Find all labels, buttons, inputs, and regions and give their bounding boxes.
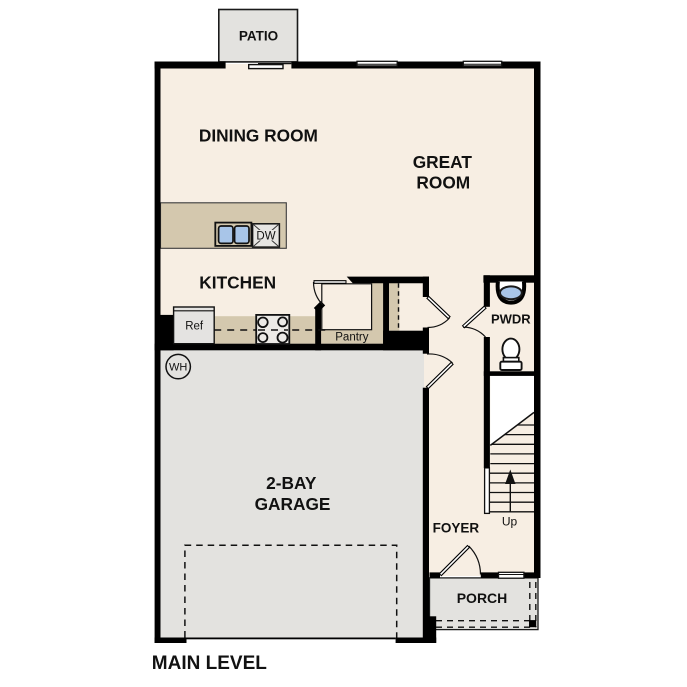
svg-text:Pantry: Pantry [335,331,368,343]
svg-text:Ref: Ref [185,321,204,333]
svg-text:PWDR: PWDR [491,311,531,326]
svg-text:DINING ROOM: DINING ROOM [199,126,318,146]
svg-text:KITCHEN: KITCHEN [199,272,276,292]
svg-text:DW: DW [256,231,275,243]
svg-text:2-BAY: 2-BAY [266,473,317,493]
svg-text:PORCH: PORCH [457,590,508,606]
svg-text:Up: Up [502,514,518,528]
svg-text:ROOM: ROOM [416,173,470,193]
svg-text:GARAGE: GARAGE [255,494,331,514]
svg-text:FOYER: FOYER [433,520,480,535]
svg-text:WH: WH [169,362,187,374]
svg-text:GREAT: GREAT [413,152,473,172]
svg-text:PATIO: PATIO [239,29,278,44]
svg-text:MAIN LEVEL: MAIN LEVEL [152,653,267,674]
